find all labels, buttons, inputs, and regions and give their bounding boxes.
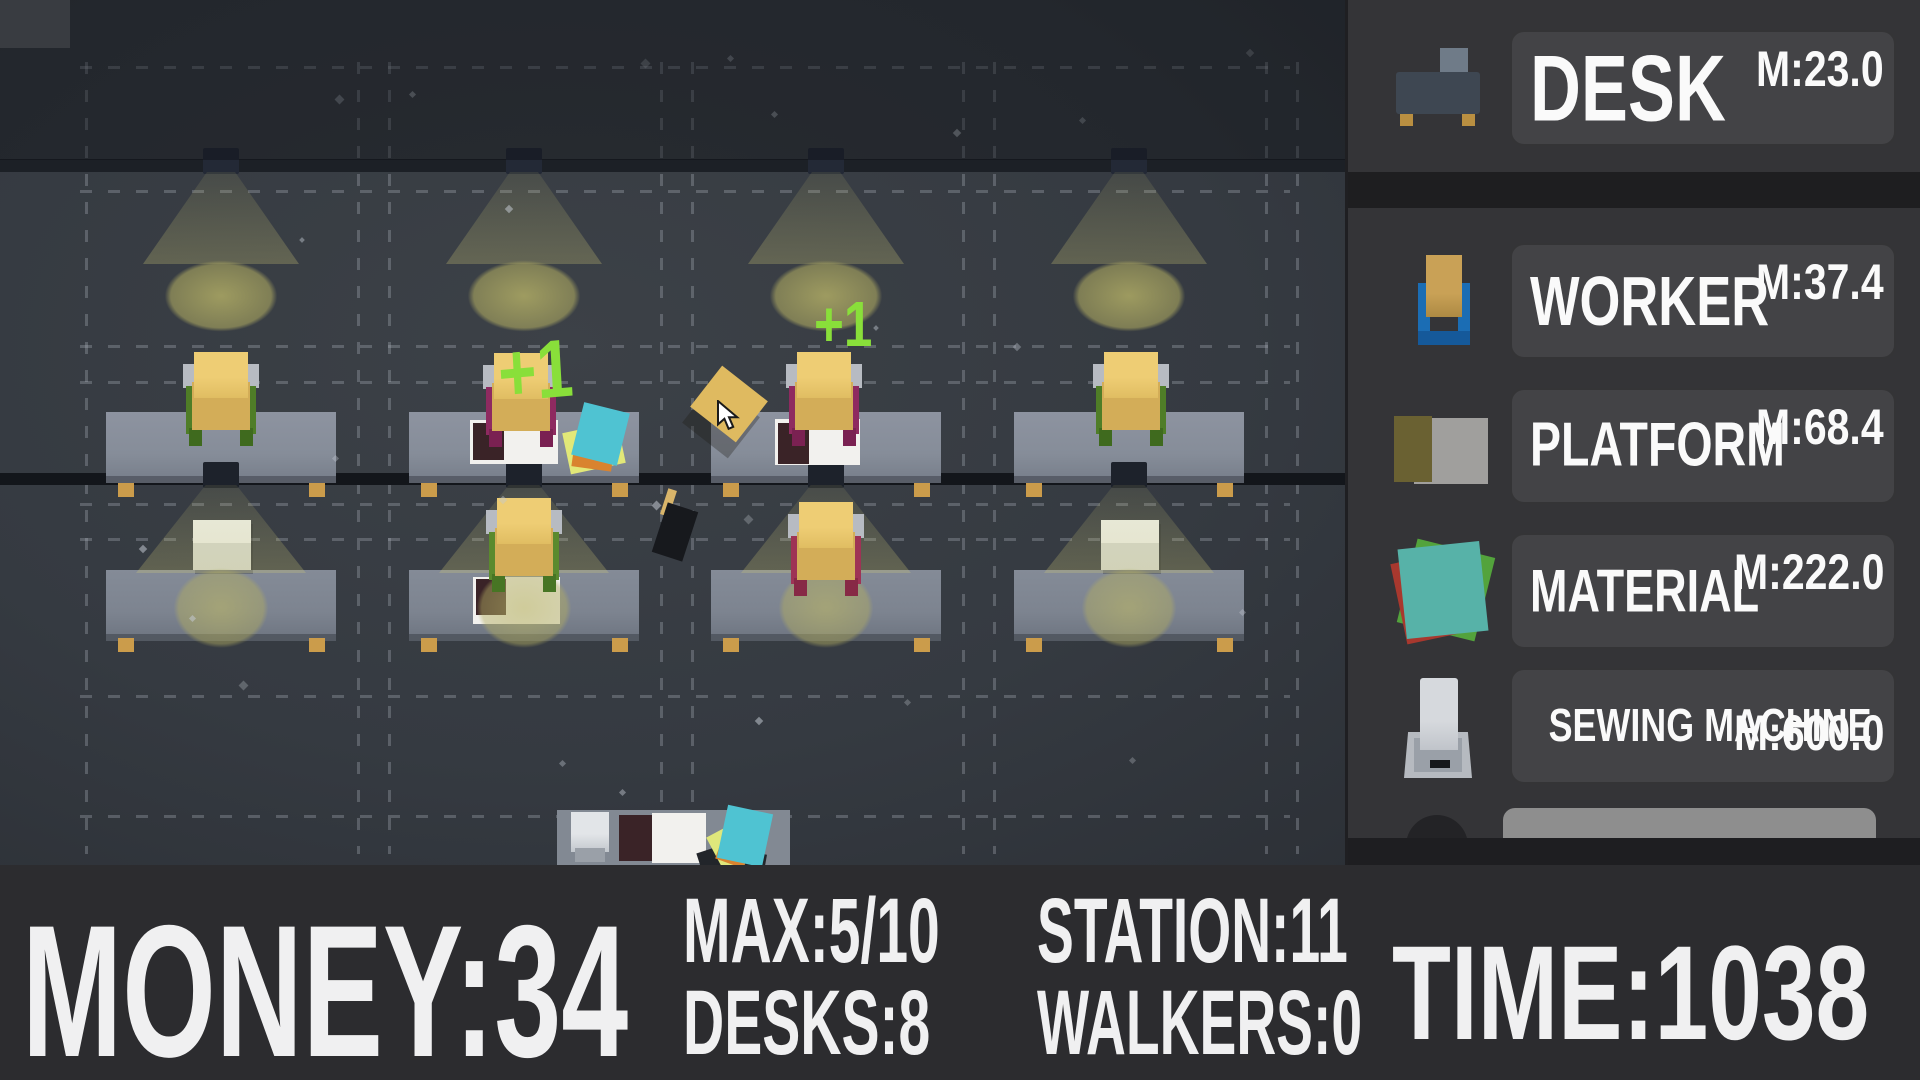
dust-speck (139, 545, 147, 553)
worker[interactable] (486, 498, 562, 592)
desks-readout: DESKS:8 (683, 977, 930, 1069)
chair-part (792, 428, 805, 446)
floor-marker (914, 483, 930, 497)
chair-part (489, 429, 502, 447)
lamp-light-pool (1065, 554, 1193, 662)
floor-marker (309, 638, 325, 652)
floor-marker (421, 638, 437, 652)
floating-plus-one: +1 (814, 292, 872, 356)
dust-speck (299, 237, 305, 243)
sewing-machine-base (575, 848, 605, 862)
floor-marker (612, 638, 628, 652)
shop-panel: DESK M:23.0 WORKER M:37.4 PLATFORM M:68.… (1345, 0, 1920, 838)
material-icon (1388, 533, 1503, 649)
dust-speck (619, 789, 626, 796)
money-readout: MONEY:34 (22, 897, 628, 1080)
chair-part (240, 428, 253, 446)
chair-part (492, 574, 505, 592)
floor-grid-line (80, 695, 1290, 698)
max-readout: MAX:5/10 (683, 885, 940, 977)
upper-wall-shadow (0, 0, 1345, 160)
shop-item-worker[interactable]: WORKER M:37.4 (1510, 243, 1896, 359)
lamp-fixture (808, 462, 844, 488)
shop-item-material[interactable]: MATERIAL M:222.0 (1510, 533, 1896, 649)
worker[interactable] (183, 352, 259, 446)
wall-corner-block (0, 0, 70, 48)
worker-head (1104, 352, 1158, 398)
floor-grid-line (962, 62, 965, 854)
shop-divider (1348, 172, 1920, 208)
floor-marker (914, 638, 930, 652)
floor-marker (118, 638, 134, 652)
dust-speck (755, 717, 763, 725)
floor-marker (723, 638, 739, 652)
worker[interactable] (786, 352, 862, 446)
dust-speck (904, 699, 911, 706)
chair-part (189, 428, 202, 446)
station-readout: STATION:11 (1037, 885, 1348, 977)
hud-bar: MONEY:34 MAX:5/10 STATION:11 DESKS:8 WAL… (0, 865, 1920, 1080)
floor-grid-line (660, 62, 663, 854)
panel-bottom-strip (1345, 838, 1920, 865)
worker-icon (1388, 243, 1503, 359)
floor-marker (1026, 483, 1042, 497)
floor-marker (1026, 638, 1042, 652)
chair-part (1150, 428, 1163, 446)
walkers-readout: WALKERS:0 (1037, 977, 1362, 1069)
dust-speck (559, 760, 566, 767)
dust-speck (1129, 757, 1136, 764)
time-readout: TIME:1038 (1392, 927, 1869, 1061)
floor-marker (309, 483, 325, 497)
next-shop-item-button[interactable] (1503, 808, 1876, 838)
dust-speck (744, 515, 754, 525)
chair-part (843, 428, 856, 446)
floor-marker (612, 483, 628, 497)
chair-part (543, 574, 556, 592)
worker-head (799, 502, 853, 548)
game-screen: +1 +1 DESK M:23.0 WORKER M:37.4 (0, 0, 1920, 1080)
lamp-fixture (203, 462, 239, 488)
sewing-machine[interactable] (571, 812, 609, 852)
floor-grid-line (1296, 62, 1299, 854)
worker-head (194, 352, 248, 398)
worker[interactable] (1093, 352, 1169, 446)
floor-grid-line (993, 62, 996, 854)
platform-icon (1388, 388, 1503, 504)
chair-part (845, 578, 858, 596)
lamp-fixture (1111, 462, 1147, 488)
mouse-cursor-icon (716, 400, 742, 432)
floor-marker (1217, 638, 1233, 652)
chair-part (794, 578, 807, 596)
shop-item-desk[interactable]: DESK M:23.0 (1510, 30, 1896, 146)
shop-item-platform[interactable]: PLATFORM M:68.4 (1510, 388, 1896, 504)
lamp-fixture (506, 462, 542, 488)
worker[interactable] (788, 502, 864, 596)
chair-part (540, 429, 553, 447)
floor-grid-line (80, 345, 1290, 348)
floor-grid-line (388, 62, 391, 854)
lamp-light-pool (157, 554, 285, 662)
lamp-light-pool (145, 248, 297, 344)
floor-grid-line (1265, 62, 1268, 854)
floor-grid-line (357, 62, 360, 854)
floor-grid-line (691, 62, 694, 854)
shop-item-sewing-machine[interactable]: SEWING MACHINE M:600.0 (1510, 668, 1896, 784)
worker-head (497, 498, 551, 544)
floor-marker (421, 483, 437, 497)
game-viewport[interactable]: +1 +1 (0, 0, 1345, 865)
desk-icon (1388, 30, 1503, 146)
sewing-machine-icon (1388, 668, 1503, 784)
lamp-light-pool (1053, 248, 1205, 344)
floor-marker (118, 483, 134, 497)
floor-marker (1217, 483, 1233, 497)
chair-part (1099, 428, 1112, 446)
work-platform[interactable] (619, 815, 654, 861)
floor-grid-line (85, 62, 88, 854)
dust-speck (239, 681, 249, 691)
floor-marker (723, 483, 739, 497)
floating-plus-one: +1 (496, 327, 575, 415)
